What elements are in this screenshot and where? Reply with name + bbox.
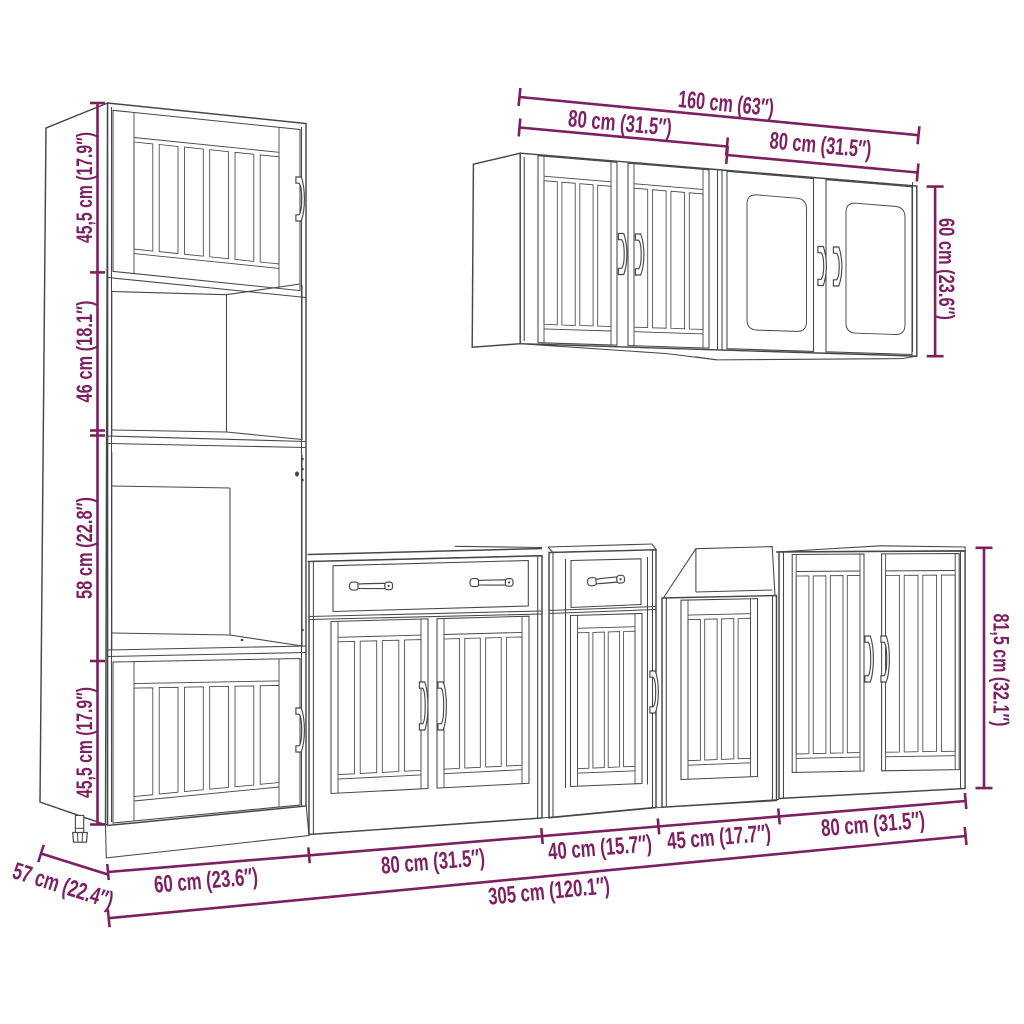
svg-text:45,5 cm (17.9″): 45,5 cm (17.9″) <box>72 132 97 243</box>
svg-text:45,5 cm (17.9″): 45,5 cm (17.9″) <box>72 687 97 798</box>
svg-text:81,5 cm (32.1″): 81,5 cm (32.1″) <box>989 614 1014 727</box>
svg-text:58 cm (22.8″): 58 cm (22.8″) <box>72 497 97 599</box>
svg-text:46 cm (18.1″): 46 cm (18.1″) <box>72 301 97 403</box>
svg-text:60 cm (23.6″): 60 cm (23.6″) <box>934 218 959 320</box>
